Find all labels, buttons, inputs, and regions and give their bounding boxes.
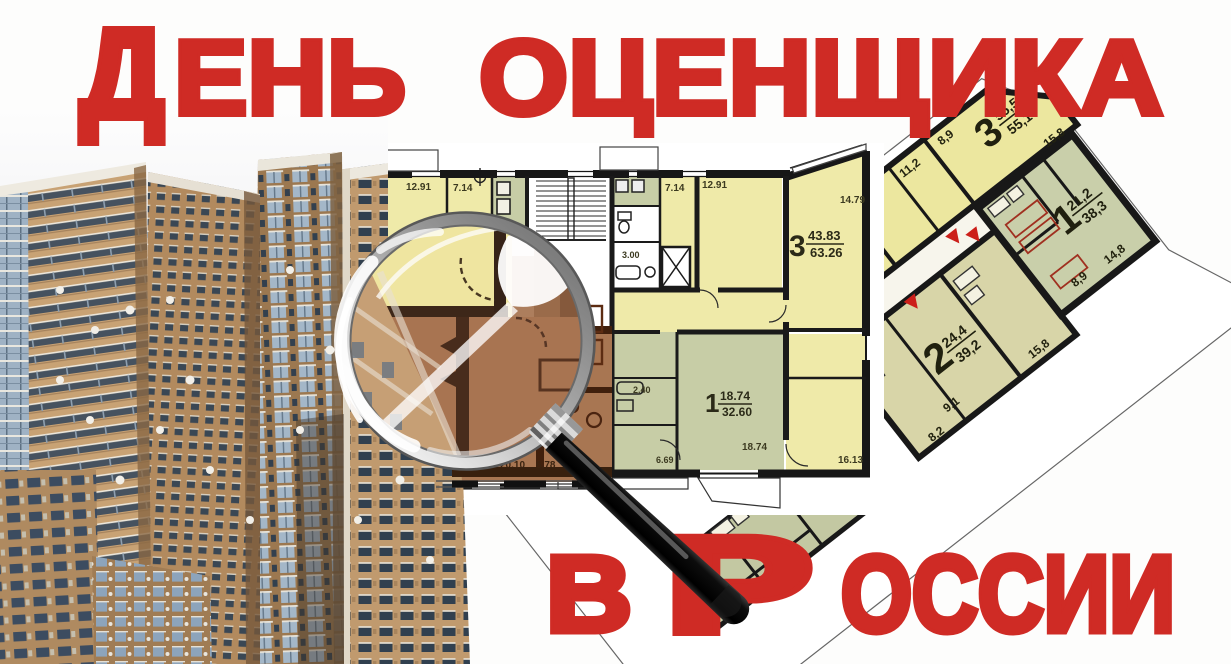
svg-text:3.00: 3.00 xyxy=(622,250,640,260)
svg-text:16.13: 16.13 xyxy=(838,455,863,466)
svg-text:7.14: 7.14 xyxy=(665,183,685,194)
svg-text:7.14: 7.14 xyxy=(453,183,473,194)
svg-text:18.74: 18.74 xyxy=(742,442,767,453)
svg-text:18.74: 18.74 xyxy=(720,389,750,403)
svg-text:ОССИИ: ОССИИ xyxy=(841,533,1175,654)
svg-text:14.79: 14.79 xyxy=(840,195,865,206)
svg-text:1: 1 xyxy=(705,388,719,418)
svg-text:3: 3 xyxy=(789,230,806,263)
svg-text:Д: Д xyxy=(80,3,164,144)
svg-text:ОЦЕНЩИКА: ОЦЕНЩИКА xyxy=(479,19,1163,137)
svg-text:В: В xyxy=(546,533,632,654)
svg-text:63.26: 63.26 xyxy=(810,245,843,260)
svg-text:6.69: 6.69 xyxy=(656,455,674,465)
svg-text:6.78: 6.78 xyxy=(536,460,556,471)
svg-text:32.60: 32.60 xyxy=(722,405,752,419)
svg-text:43.83: 43.83 xyxy=(808,228,841,243)
svg-text:ЕНЬ: ЕНЬ xyxy=(174,19,406,137)
svg-text:12.91: 12.91 xyxy=(406,182,431,193)
svg-text:12.91: 12.91 xyxy=(702,180,727,191)
svg-text:2.40: 2.40 xyxy=(633,385,651,395)
